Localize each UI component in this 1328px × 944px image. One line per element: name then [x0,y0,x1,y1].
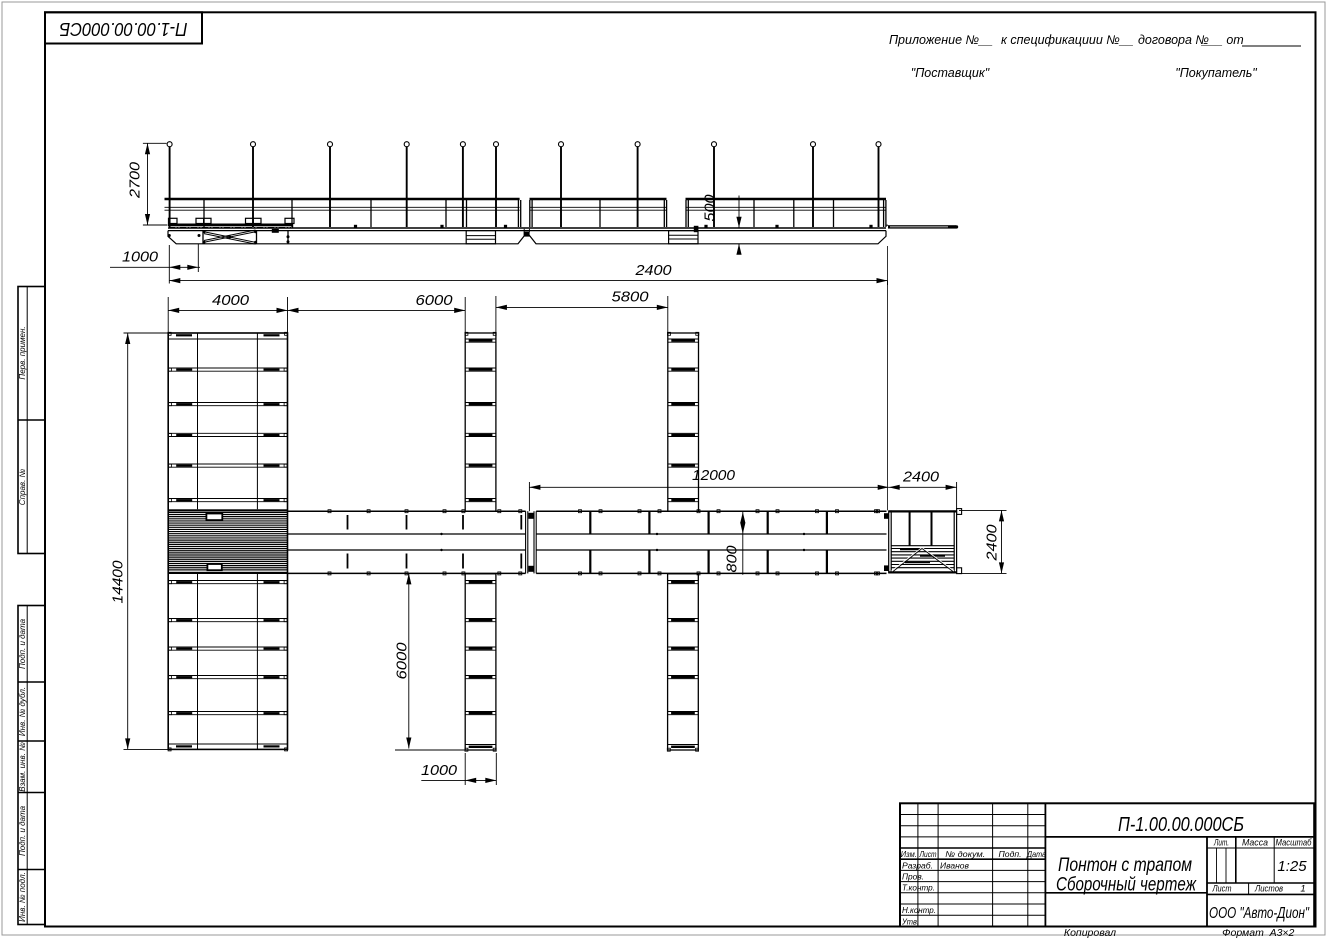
svg-text:Утв.: Утв. [901,916,919,926]
svg-text:Листов: Листов [1254,884,1283,895]
svg-text:1: 1 [1300,884,1305,895]
svg-text:Масса: Масса [1242,838,1268,849]
svg-text:Понтон с трапом: Понтон с трапом [1058,855,1192,876]
svg-text:6000: 6000 [394,642,411,680]
svg-text:Лит.: Лит. [1213,838,1229,849]
svg-text:А3×2: А3×2 [1269,927,1295,939]
svg-text:№ докум.: № докум. [945,849,985,859]
svg-text:5800: 5800 [612,289,650,306]
svg-text:Подп. и дата: Подп. и дата [18,805,27,856]
svg-text:2700: 2700 [127,161,144,199]
svg-text:2400: 2400 [984,524,1001,562]
svg-text:Масштаб: Масштаб [1276,838,1313,849]
svg-text:П-1.00.00.000СБ: П-1.00.00.000СБ [1118,814,1244,836]
svg-text:Подп.: Подп. [999,849,1022,859]
svg-text:Н.контр.: Н.контр. [902,905,936,915]
svg-text:Дата: Дата [1026,849,1046,859]
svg-text:Взам. инв. №: Взам. инв. № [18,742,27,792]
svg-text:1000: 1000 [122,249,159,266]
svg-text:___ от: ___ от [1201,33,1244,47]
svg-text:Копировал: Копировал [1064,927,1116,939]
svg-text:Приложение №__: Приложение №__ [889,33,993,47]
svg-text:Подп. и дата: Подп. и дата [18,618,27,669]
svg-text:2400: 2400 [634,262,672,279]
svg-text:"Поставщик": "Поставщик" [911,66,990,80]
svg-text:Перв. примен.: Перв. примен. [18,326,27,379]
svg-text:Сборочный чертеж: Сборочный чертеж [1056,875,1197,896]
svg-text:Разраб.: Разраб. [902,860,933,870]
svg-text:1000: 1000 [421,762,458,779]
svg-text:6000: 6000 [416,292,454,309]
svg-text:Пров.: Пров. [902,872,924,882]
svg-text:Инв. № подл.: Инв. № подл. [18,872,27,922]
svg-text:к спецификациии №__: к спецификациии №__ [1001,33,1134,47]
svg-text:"Покупатель": "Покупатель" [1175,66,1257,80]
svg-text:Инв. № дубл.: Инв. № дубл. [18,687,27,736]
svg-text:Лист: Лист [919,849,937,859]
svg-text:800: 800 [724,545,741,573]
svg-text:1:25: 1:25 [1277,858,1307,875]
svg-text:14400: 14400 [110,560,127,604]
svg-text:Справ. №: Справ. № [18,468,27,505]
svg-text:договора №: договора № [1138,33,1209,47]
svg-text:12000: 12000 [692,467,736,484]
svg-text:ООО "Авто-Дион": ООО "Авто-Дион" [1209,905,1310,922]
svg-text:Т.контр.: Т.контр. [902,883,935,893]
svg-text:500: 500 [702,194,719,222]
svg-text:2400: 2400 [902,469,940,486]
svg-text:Формат: Формат [1222,927,1264,939]
svg-text:Лист: Лист [1212,884,1232,895]
svg-text:П-1.00.00.000СБ: П-1.00.00.000СБ [59,19,187,39]
svg-text:4000: 4000 [212,292,250,309]
svg-text:Изм.: Изм. [901,849,917,859]
svg-text:Иванов: Иванов [940,860,970,870]
